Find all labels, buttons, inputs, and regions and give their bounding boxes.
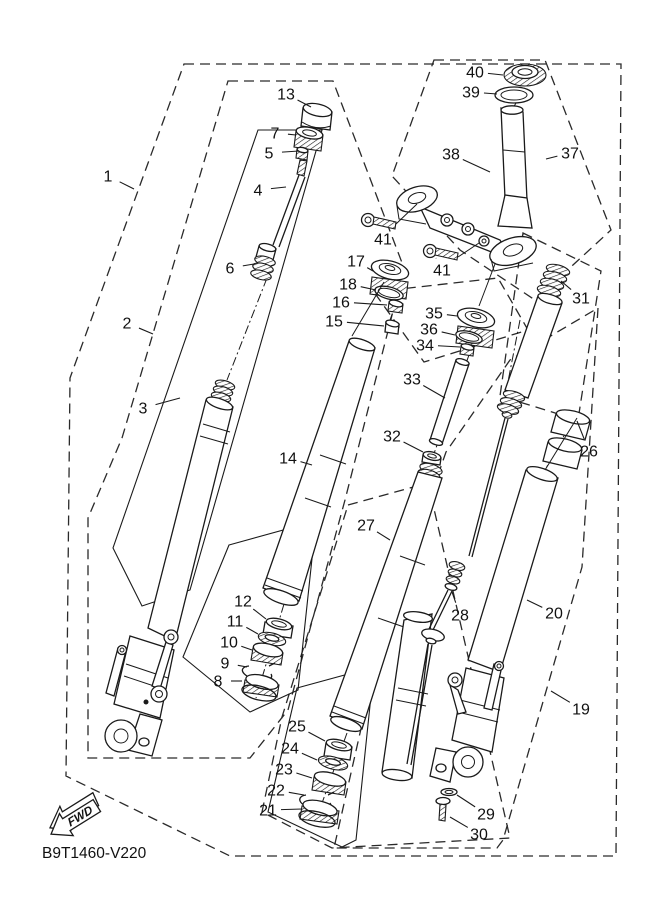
part-30-bolt-drawing <box>436 798 450 822</box>
callout-number-25: 25 <box>288 719 306 736</box>
part-14-inner-tube-drawing <box>262 336 376 609</box>
callout-number-13: 13 <box>277 87 295 104</box>
callout-leader-21 <box>281 809 302 810</box>
part-38-steering-stem-drawing <box>393 106 540 271</box>
callout-4: 4 <box>254 183 286 200</box>
callout-19: 19 <box>551 691 590 719</box>
callout-13: 13 <box>277 87 311 108</box>
callout-number-35: 35 <box>425 306 443 323</box>
callout-number-24: 24 <box>281 741 299 758</box>
callout-leader-34 <box>438 346 460 347</box>
callout-5: 5 <box>265 146 299 163</box>
callout-leader-3 <box>156 398 180 405</box>
callout-number-28: 28 <box>451 608 469 625</box>
callout-leader-35 <box>447 315 457 316</box>
callout-24: 24 <box>281 741 317 761</box>
part-29-washer-drawing <box>441 789 457 796</box>
callout-number-40: 40 <box>466 65 484 82</box>
part-39-washer-drawing <box>495 87 533 103</box>
callout-leader-10 <box>241 646 252 650</box>
callout-leader-32 <box>404 442 423 452</box>
callout-40: 40 <box>466 65 503 82</box>
callout-1: 1 <box>104 169 134 190</box>
callout-number-15: 15 <box>325 314 343 331</box>
callout-number-31: 31 <box>572 291 590 308</box>
callout-leader-25 <box>308 732 325 741</box>
callout-10: 10 <box>220 635 252 652</box>
callout-23: 23 <box>275 762 312 779</box>
callout-number-41: 41 <box>433 263 451 280</box>
callout-36: 36 <box>420 322 455 339</box>
callout-6: 6 <box>226 261 254 278</box>
callout-leader-33 <box>423 385 445 398</box>
part-3-outer-tube-drawing <box>148 394 234 641</box>
diagram-page: 1234567891011121314151617181920212223242… <box>0 0 662 914</box>
callout-number-10: 10 <box>220 635 238 652</box>
callout-33: 33 <box>403 372 445 399</box>
callout-number-19: 19 <box>572 702 590 719</box>
callout-leader-30 <box>450 817 468 827</box>
callout-number-8: 8 <box>214 674 223 691</box>
callout-number-32: 32 <box>383 429 401 446</box>
callout-7: 7 <box>271 126 296 143</box>
callout-number-1: 1 <box>104 169 113 186</box>
callout-leader-12 <box>253 609 266 619</box>
callout-39: 39 <box>462 85 497 102</box>
callout-leader-40 <box>488 73 503 75</box>
part-41-bolt-lower-drawing <box>424 245 459 261</box>
callout-number-27: 27 <box>357 518 375 535</box>
callout-number-30: 30 <box>470 827 488 844</box>
callout-leader-11 <box>246 627 258 634</box>
callout-number-21: 21 <box>259 803 277 820</box>
callout-34: 34 <box>416 338 460 355</box>
callout-number-23: 23 <box>275 762 293 779</box>
callout-leader-7 <box>288 134 296 135</box>
callout-number-12: 12 <box>234 594 252 611</box>
part-15-collar-drawing <box>385 319 400 334</box>
callout-35: 35 <box>425 306 457 323</box>
callout-leader-20 <box>527 600 542 607</box>
callout-number-5: 5 <box>265 146 274 163</box>
callout-28: 28 <box>451 592 469 625</box>
callout-2: 2 <box>123 316 153 335</box>
callout-41: 41 <box>433 258 451 280</box>
callout-number-38: 38 <box>442 147 460 164</box>
callout-22: 22 <box>267 783 304 800</box>
callout-number-18: 18 <box>339 277 357 294</box>
callout-leader-22 <box>289 792 304 795</box>
callout-leader-37 <box>546 156 557 159</box>
callout-number-9: 9 <box>221 656 230 673</box>
callout-leader-36 <box>442 332 455 335</box>
callout-leader-24 <box>302 753 317 760</box>
part-code: B9T1460-V220 <box>42 845 147 862</box>
callout-20: 20 <box>527 600 563 623</box>
callout-number-7: 7 <box>271 126 280 143</box>
fwd-marker: FWD <box>41 787 107 845</box>
part-40-bearing-drawing <box>504 64 546 86</box>
callout-number-11: 11 <box>227 614 244 631</box>
callout-leader-1 <box>120 182 134 189</box>
callout-number-3: 3 <box>139 401 148 418</box>
parts-21-25-seal-stack-drawing <box>297 737 353 830</box>
callout-number-39: 39 <box>462 85 480 102</box>
callout-number-34: 34 <box>416 338 434 355</box>
callout-11: 11 <box>227 614 258 635</box>
callout-number-29: 29 <box>477 807 495 824</box>
part-6-rebound-spring-drawing <box>250 242 277 282</box>
callout-leader-29 <box>457 795 475 807</box>
part-33-damper-tube-drawing <box>429 357 470 446</box>
callout-leader-2 <box>139 328 153 334</box>
part-41-bolt-upper-drawing <box>362 214 397 230</box>
callout-number-33: 33 <box>403 372 421 389</box>
part-4-damper-rod-drawing <box>273 160 307 247</box>
callout-32: 32 <box>383 429 423 453</box>
callout-15: 15 <box>325 314 384 331</box>
callout-number-22: 22 <box>267 783 285 800</box>
parts-8-12-seal-stack-drawing <box>240 616 293 704</box>
callout-number-16: 16 <box>332 295 350 312</box>
callout-leader-38 <box>463 159 490 172</box>
callout-leader-23 <box>296 773 312 778</box>
part-13-cap-drawing <box>301 101 333 130</box>
callout-16: 16 <box>332 295 387 312</box>
callout-number-36: 36 <box>420 322 438 339</box>
callout-27: 27 <box>357 518 390 541</box>
callout-number-26: 26 <box>580 444 598 461</box>
part-16-nut-drawing <box>388 299 404 313</box>
callout-leader-4 <box>271 187 286 189</box>
callout-number-2: 2 <box>123 316 132 333</box>
callout-number-37: 37 <box>561 146 579 163</box>
callout-29: 29 <box>457 795 495 824</box>
callout-leader-27 <box>377 532 390 540</box>
callout-41: 41 <box>374 228 392 249</box>
callout-37: 37 <box>546 146 579 163</box>
callout-17: 17 <box>347 254 373 272</box>
callout-number-6: 6 <box>226 261 235 278</box>
axle-bracket-left-drawing <box>105 630 178 756</box>
part-20-outer-tube-drawing <box>468 464 559 672</box>
callout-number-4: 4 <box>254 183 263 200</box>
callout-number-14: 14 <box>279 451 297 468</box>
callout-number-41: 41 <box>374 232 392 249</box>
callout-25: 25 <box>288 719 325 742</box>
parts-diagram: 1234567891011121314151617181920212223242… <box>0 0 662 914</box>
callout-number-17: 17 <box>347 254 365 271</box>
callout-8: 8 <box>214 674 242 691</box>
callout-leader-15 <box>347 322 384 326</box>
part-5-nut-drawing <box>296 146 308 160</box>
callout-31: 31 <box>561 281 590 308</box>
callout-21: 21 <box>259 803 302 820</box>
callout-38: 38 <box>442 147 490 173</box>
callout-number-20: 20 <box>545 606 563 623</box>
callout-leader-19 <box>551 691 570 702</box>
